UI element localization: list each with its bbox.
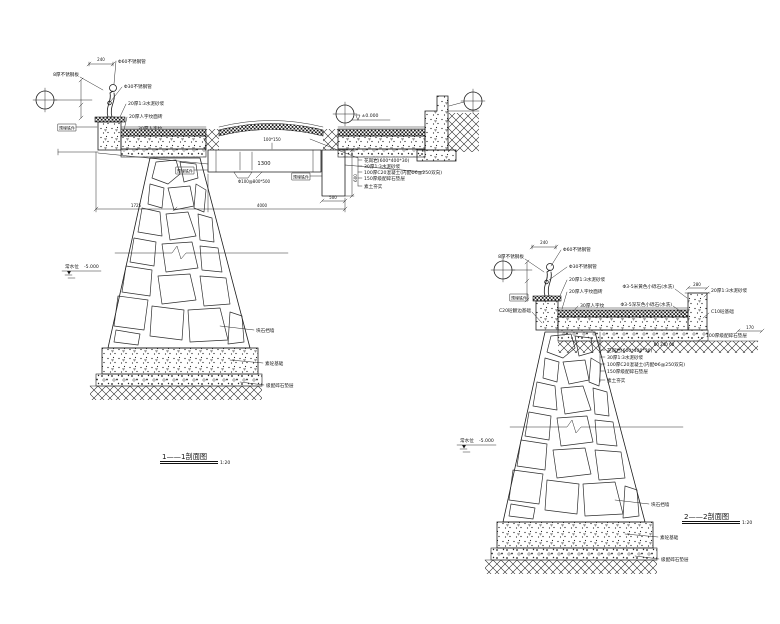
layer-1: 花岗岩(600*400*30) <box>364 157 410 164</box>
layer-2: 30厚1:3水泥砂浆 <box>364 163 401 170</box>
layer-1-2: 花岗岩(600*400*30) <box>607 347 653 354</box>
caption-2-text: 2——2剖面图 <box>684 512 729 521</box>
layer-3: 100厚C20混凝土(内配Φ6@250双向) <box>364 169 442 176</box>
pipe30-label-2: Φ30不锈钢管 <box>569 263 597 270</box>
c10-footing-label: C10砼基础 <box>711 308 734 315</box>
beam-size: 100*150 <box>263 137 281 142</box>
pebble-grey-label: Φ3-5深灰色小砾石(水洗) <box>621 301 673 308</box>
mortar-label-2: 20厚1:3水泥砂浆 <box>569 276 606 283</box>
tile20-label-2: 20厚人字纹面砖 <box>569 288 603 295</box>
gravel-100-label: 100厚级配碎石垫层 <box>706 332 747 339</box>
zero-level-value: ±0.000 <box>361 113 378 119</box>
layer-4-2: 150厚级配碎石垫层 <box>607 368 648 375</box>
layer-5: 素土夯实 <box>364 183 383 190</box>
pipe30-label: Φ30不锈钢管 <box>124 83 152 90</box>
layer-4: 150厚级配碎石垫层 <box>364 175 405 182</box>
embed-tag-4: 预埋铁件 <box>511 294 527 300</box>
coping-wall-2 <box>536 301 558 330</box>
curb-block <box>688 293 707 330</box>
mortar-right-label: 20厚1:3水泥砂浆 <box>711 287 748 294</box>
plate-label: 8厚不锈钢板 <box>53 71 79 78</box>
deck-right-layers <box>338 127 425 157</box>
mortar-label: 20厚1:3水泥砂浆 <box>128 100 165 107</box>
pipe60-label-2: Φ60不锈钢管 <box>563 246 591 253</box>
dim-240-2: 240 <box>540 240 548 245</box>
caption-2-scale: 1:20 <box>742 520 752 526</box>
c20-edge-label: C20砼翻边基础 <box>499 307 531 314</box>
right-soil-hatch <box>448 113 479 152</box>
drawing-sheet: 常水位 -5.000 块石挡墙 素砼基础 级配碎石垫层 <box>0 0 780 624</box>
tile20-label: 20厚人字纹面砖 <box>129 113 163 120</box>
beam-note: Φ100@800*500 <box>238 179 271 184</box>
embed-tag-3: 预埋铁件 <box>293 173 309 179</box>
pipe60-label: Φ60不锈钢管 <box>118 58 146 65</box>
embed-tag-1: 预埋铁件 <box>59 124 75 130</box>
dim-280: 280 <box>693 282 701 287</box>
coping-cap-2 <box>533 296 561 301</box>
dim-500: 500 <box>329 195 337 200</box>
deck-left-layers <box>121 127 206 157</box>
dim-600: 600 <box>353 174 358 182</box>
coping-wall <box>98 122 121 150</box>
dim-triple: 60 240 60 <box>654 342 675 347</box>
dim-240: 240 <box>97 57 105 62</box>
coping-cap <box>95 117 125 122</box>
caption-1-text: 1——1剖面图 <box>162 452 207 461</box>
dim-170: 170 <box>746 325 754 330</box>
dim-4000: 4000 <box>257 203 268 208</box>
layer-3-2: 100厚C20混凝土(内配Φ6@250双向) <box>607 361 685 368</box>
beam-dim-1300: 1300 <box>257 161 270 167</box>
caption-1-scale: 1:20 <box>220 460 230 466</box>
cad-canvas: 常水位 -5.000 块石挡墙 素砼基础 级配碎石垫层 <box>0 0 780 624</box>
layer-2-2: 30厚1:3水泥砂浆 <box>607 354 644 361</box>
plate-label-2: 8厚不锈钢板 <box>498 253 524 260</box>
layer-5-2: 素土夯实 <box>607 377 626 384</box>
pebble-yellow-label: Φ3-5米黄色小砾石(水洗) <box>623 283 675 290</box>
